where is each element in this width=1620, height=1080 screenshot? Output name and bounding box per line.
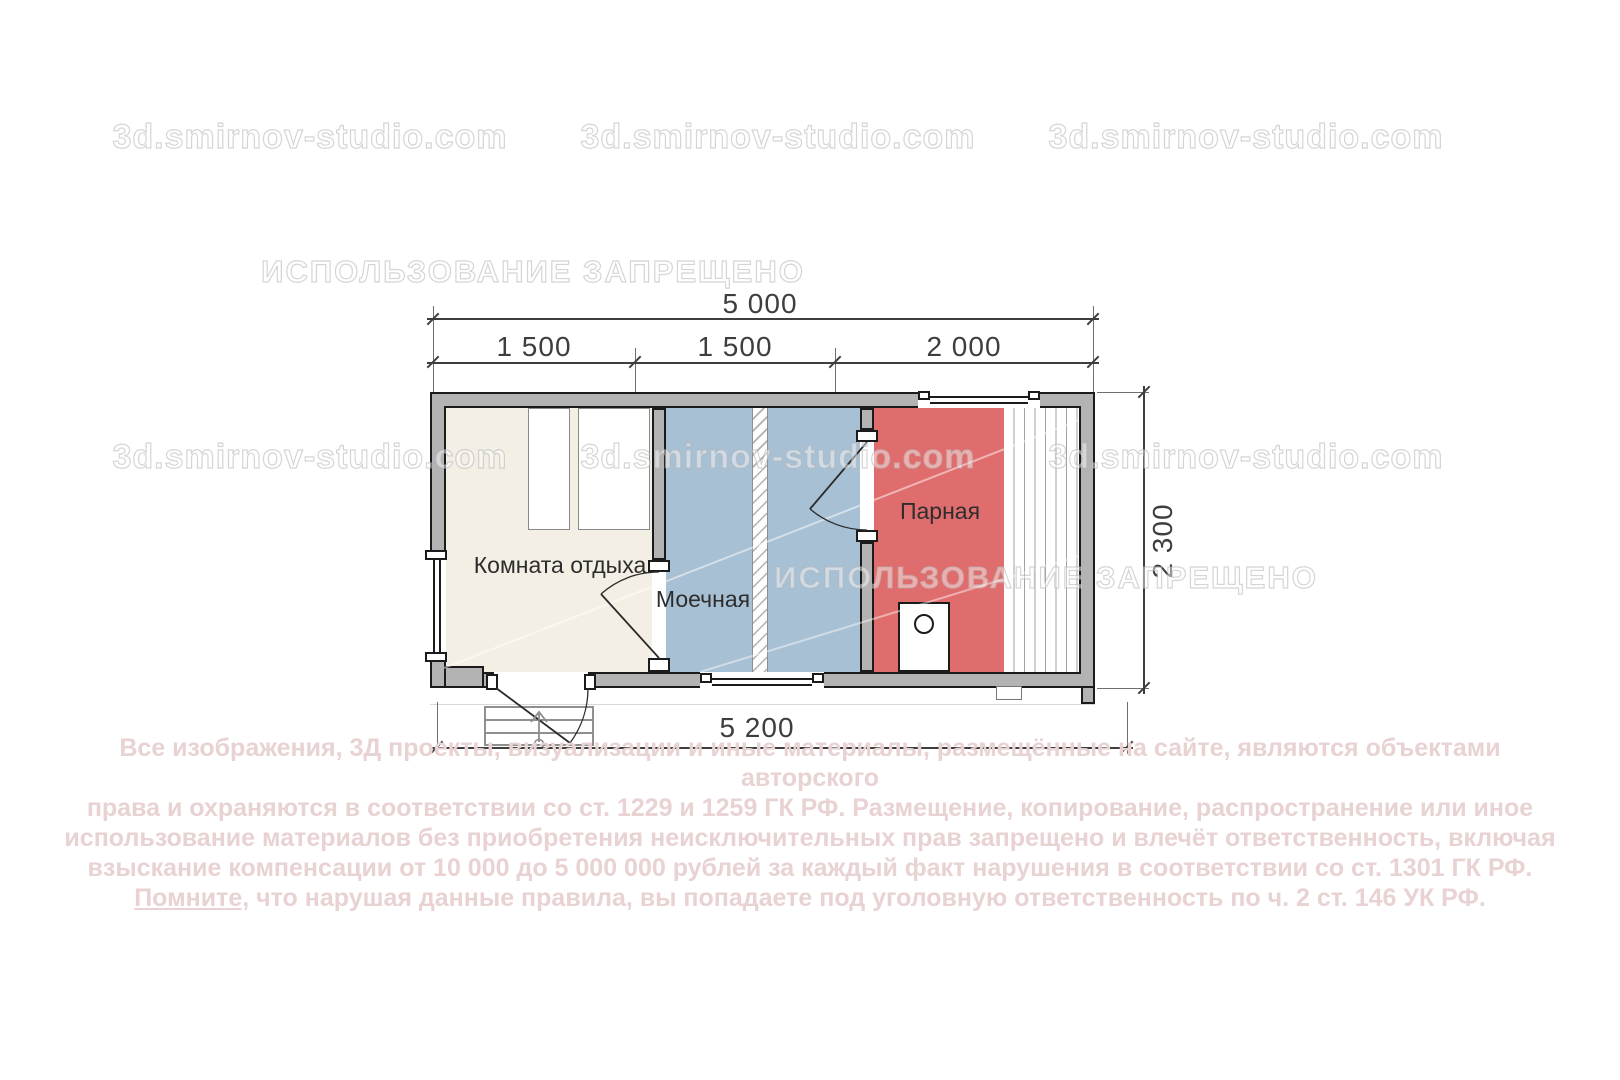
copyright-line: Все изображения, 3Д проекты, визуализаци… [60, 733, 1560, 793]
watermark-site: 3d.smirnov-studio.com [112, 118, 507, 157]
copyright-line-rest: что нарушая данные правила, вы попадаете… [249, 884, 1486, 912]
watermark-site: 3d.smirnov-studio.com [580, 118, 975, 157]
wash-steam-door-swing [810, 509, 867, 530]
watermark-site: 3d.smirnov-studio.com [1048, 438, 1443, 477]
dim-line-right [1143, 386, 1145, 694]
room-steam-room-label: Парная [870, 498, 1010, 525]
watermark-forbidden: ИСПОЛЬЗОВАНИЕ ЗАПРЕЩЕНО [261, 254, 805, 290]
watermark-site: 3d.smirnov-studio.com [580, 438, 975, 477]
room-rest-area-label: Комната отдыха [460, 552, 660, 579]
door-swings-overlay [0, 0, 1620, 1080]
watermark-site: 3d.smirnov-studio.com [112, 438, 507, 477]
copyright-line: использование материалов без приобретени… [60, 823, 1560, 853]
dim-segment-3: 2 000 [864, 331, 1064, 363]
copyright-line: права и охраняются в соответствии со ст.… [60, 793, 1560, 823]
dim-segment-2: 1 500 [635, 331, 835, 363]
dim-top-total: 5 000 [660, 288, 860, 320]
extension-line [835, 348, 836, 392]
dim-segment-1: 1 500 [434, 331, 634, 363]
copyright-line: взыскание компенсации от 10 000 до 5 000… [60, 853, 1560, 883]
watermark-forbidden: ИСПОЛЬЗОВАНИЕ ЗАПРЕЩЕНО [774, 560, 1318, 596]
room-washroom-label: Моечная [620, 586, 786, 613]
copyright-line: Помните, что нарушая данные правила, вы … [60, 883, 1560, 913]
copyright-notice: Все изображения, 3Д проекты, визуализаци… [60, 733, 1560, 913]
watermark-site: 3d.smirnov-studio.com [1048, 118, 1443, 157]
floor-plan-page: Комната отдыха Моечная Парная 5 000 1 50… [0, 0, 1620, 1080]
copyright-underlined-word: Помните, [134, 884, 249, 912]
